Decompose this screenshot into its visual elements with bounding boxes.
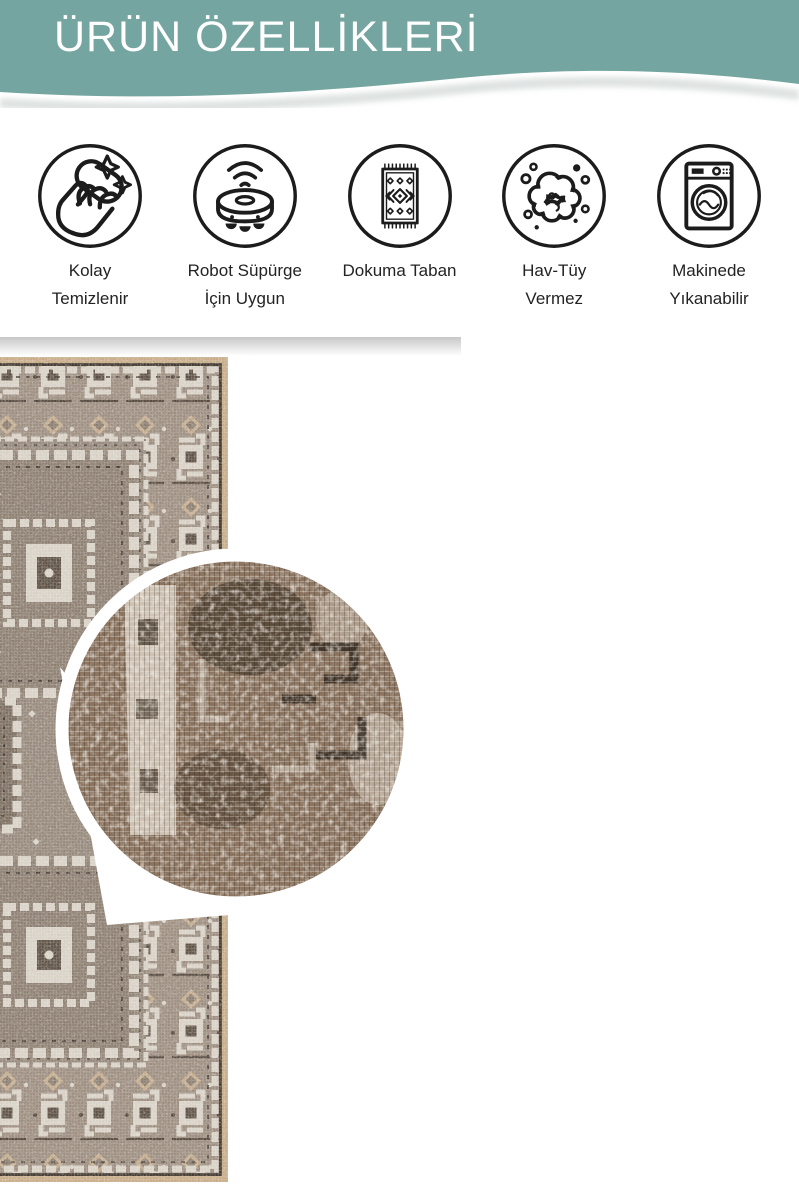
feature-item-woven-base: Dokuma Taban: [324, 142, 476, 285]
woven-rug-icon: [346, 142, 454, 250]
feature-item-easy-clean: Kolay Temizlenir: [14, 142, 166, 313]
feature-list: Kolay Temizlenir: [0, 142, 799, 313]
feature-label-line1: Robot Süpürge: [188, 257, 302, 285]
feature-label-line1: Makinede: [669, 257, 748, 285]
feature-label-line1: Hav-Tüy: [522, 257, 586, 285]
feature-label-line2: İçin Uygun: [188, 285, 302, 313]
product-photo: [0, 337, 799, 1199]
feature-item-robot-vacuum: Robot Süpürge İçin Uygun: [169, 142, 321, 313]
page-title: ÜRÜN ÖZELLİKLERİ: [54, 14, 479, 61]
feature-label-line1: Kolay: [52, 257, 129, 285]
hand-wipe-icon: [36, 142, 144, 250]
section-divider-shadow: [0, 337, 461, 356]
feature-label: Dokuma Taban: [342, 257, 456, 285]
feature-label: Makinede Yıkanabilir: [669, 257, 748, 313]
feature-label: Hav-Tüy Vermez: [522, 257, 586, 313]
feature-label: Kolay Temizlenir: [52, 257, 129, 313]
header-banner: ÜRÜN ÖZELLİKLERİ: [0, 0, 799, 108]
product-photo-section: [0, 337, 799, 1199]
header-wave: [0, 70, 799, 108]
feature-item-no-lint: Hav-Tüy Vermez: [478, 142, 630, 313]
feature-label-line2: Yıkanabilir: [669, 285, 748, 313]
washing-machine-icon: [655, 142, 763, 250]
robot-vacuum-icon: [191, 142, 299, 250]
feature-label-line1: Dokuma Taban: [342, 257, 456, 285]
lint-cloud-icon: [500, 142, 608, 250]
product-features-page: ÜRÜN ÖZELLİKLERİ: [0, 0, 799, 1200]
feature-label-line2: Vermez: [522, 285, 586, 313]
feature-label-line2: Temizlenir: [52, 285, 129, 313]
feature-item-machine-washable: Makinede Yıkanabilir: [633, 142, 785, 313]
feature-label: Robot Süpürge İçin Uygun: [188, 257, 302, 313]
